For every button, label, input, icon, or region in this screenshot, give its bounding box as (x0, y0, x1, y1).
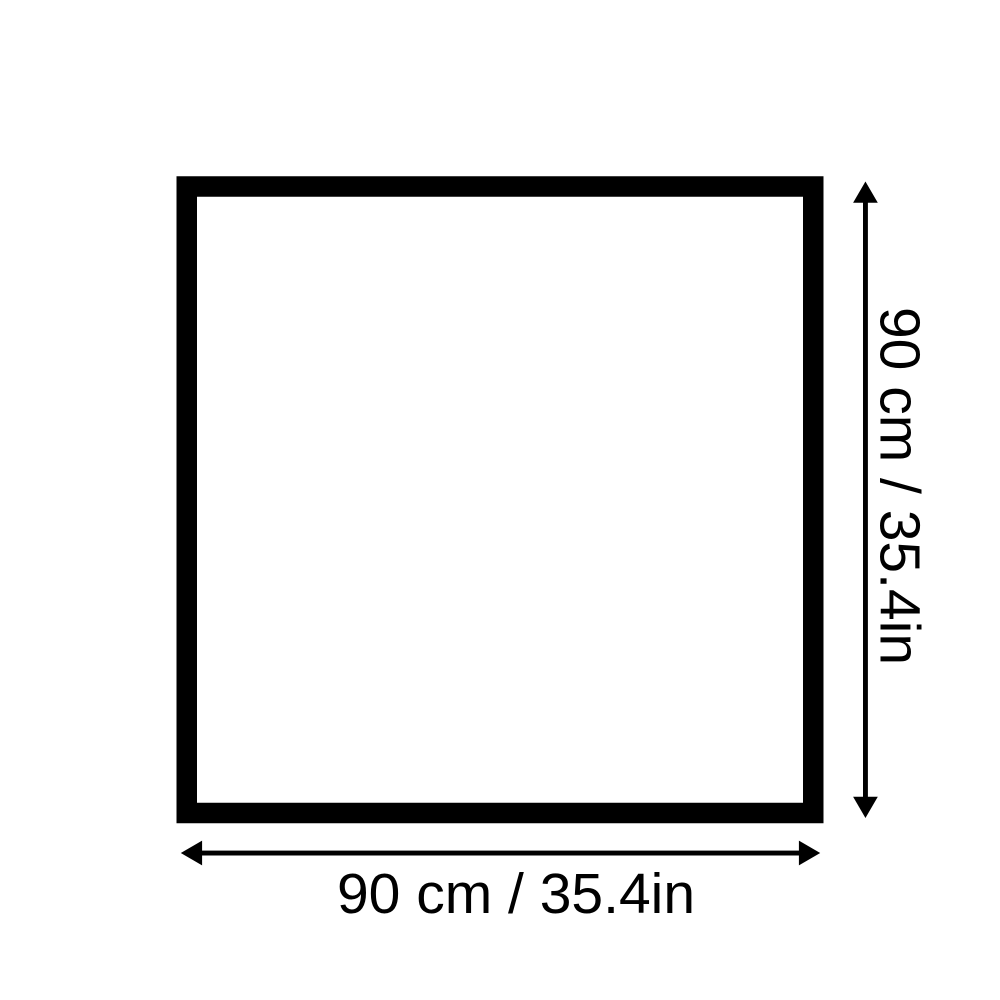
svg-text:90 cm / 35.4in: 90 cm / 35.4in (337, 862, 695, 926)
svg-text:90 cm / 35.4in: 90 cm / 35.4in (868, 307, 932, 665)
